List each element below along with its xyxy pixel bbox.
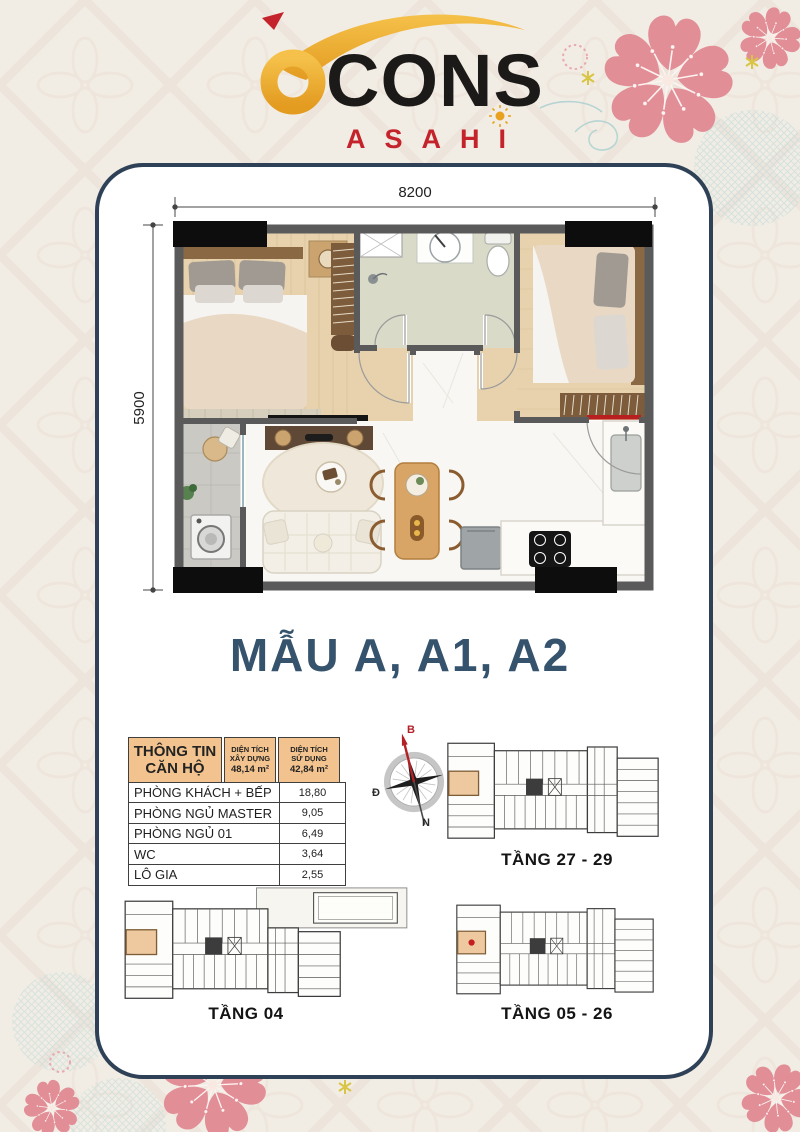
table-row: WC 3,64	[128, 843, 346, 865]
floor-label-27-29: TẦNG 27 - 29	[446, 850, 668, 870]
plan-width-dimension: 8200	[398, 184, 431, 201]
unit-info-table: THÔNG TIN CĂN HỘ DIỆN TÍCH XÂY DỰNG 48,1…	[128, 737, 346, 886]
table-row: PHÒNG NGỦ 01 6,49	[128, 823, 346, 845]
second-wardrobe	[560, 393, 645, 417]
toilet-icon	[485, 233, 511, 276]
bcons-asahi-logo: CONS ASAHI	[250, 10, 550, 160]
plan-height-dimension: 5900	[133, 391, 148, 424]
highlighted-unit	[449, 771, 479, 795]
compass-south-label: N	[422, 817, 430, 829]
washing-machine-icon	[191, 515, 231, 559]
plan-title: MẪU A, A1, A2	[95, 628, 705, 682]
table-row: LÔ GIA 2,55	[128, 864, 346, 886]
unit-location-dot	[468, 939, 474, 945]
pool	[314, 893, 398, 923]
master-wardrobe	[331, 243, 357, 351]
sofa	[263, 511, 381, 573]
unit-table-header-usable-area: DIỆN TÍCH SỬ DỤNG 42,84 m²	[278, 737, 340, 783]
table-row: PHÒNG NGỦ MASTER 9,05	[128, 802, 346, 824]
keyplan-floor-05-26	[446, 893, 664, 999]
kitchen-sink-icon	[611, 426, 641, 491]
second-bed	[533, 243, 645, 385]
table-row: PHÒNG KHÁCH + BẾP 18,80	[128, 782, 346, 804]
fridge-icon	[461, 527, 501, 569]
logo-sub-text: ASAHI	[346, 124, 525, 154]
unit-table-header-info: THÔNG TIN CĂN HỘ	[128, 737, 222, 783]
logo-main-text: CONS	[326, 39, 544, 122]
coffee-table	[316, 462, 346, 492]
unit-table-header: THÔNG TIN CĂN HỘ DIỆN TÍCH XÂY DỰNG 48,1…	[128, 737, 346, 783]
floor-label-04: TẦNG 04	[131, 1004, 361, 1024]
unit-table-header-built-area: DIỆN TÍCH XÂY DỰNG 48,14 m²	[224, 737, 276, 783]
highlighted-unit	[126, 930, 156, 955]
compass-east-label: Đ	[372, 787, 380, 799]
floor-label-05-26: TẦNG 05 - 26	[446, 1004, 668, 1024]
flyer-page: CONS ASAHI 8200 5900	[0, 0, 800, 1132]
compass-north-label: B	[407, 724, 415, 736]
compass-icon: B T Đ N	[370, 722, 458, 830]
keyplan-floor-04	[122, 886, 410, 1004]
logo-b-glyph	[269, 20, 317, 106]
keyplan-floor-27-29	[446, 730, 660, 844]
apartment-floor-plan: 8200 5900	[133, 183, 667, 615]
cooktop-icon	[529, 531, 571, 567]
entry-door-red	[587, 415, 641, 420]
